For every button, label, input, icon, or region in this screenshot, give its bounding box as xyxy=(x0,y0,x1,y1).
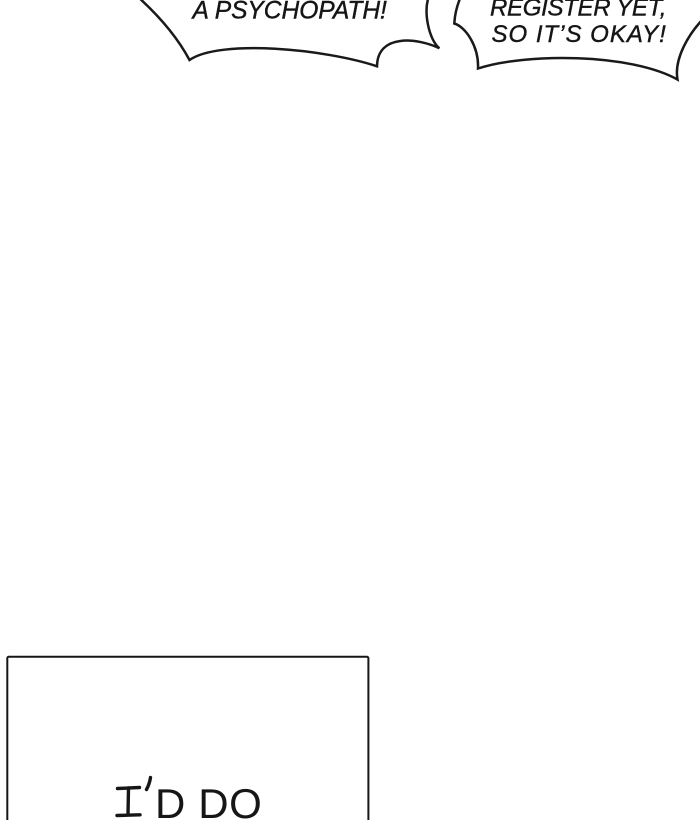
svg-text:SO IT’S OKAY!: SO IT’S OKAY! xyxy=(492,21,667,48)
svg-text:D DO: D DO xyxy=(155,780,262,820)
svg-text:A PSYCHOPATH!: A PSYCHOPATH! xyxy=(191,0,388,25)
svg-text:REGISTER YET,: REGISTER YET, xyxy=(490,0,666,22)
